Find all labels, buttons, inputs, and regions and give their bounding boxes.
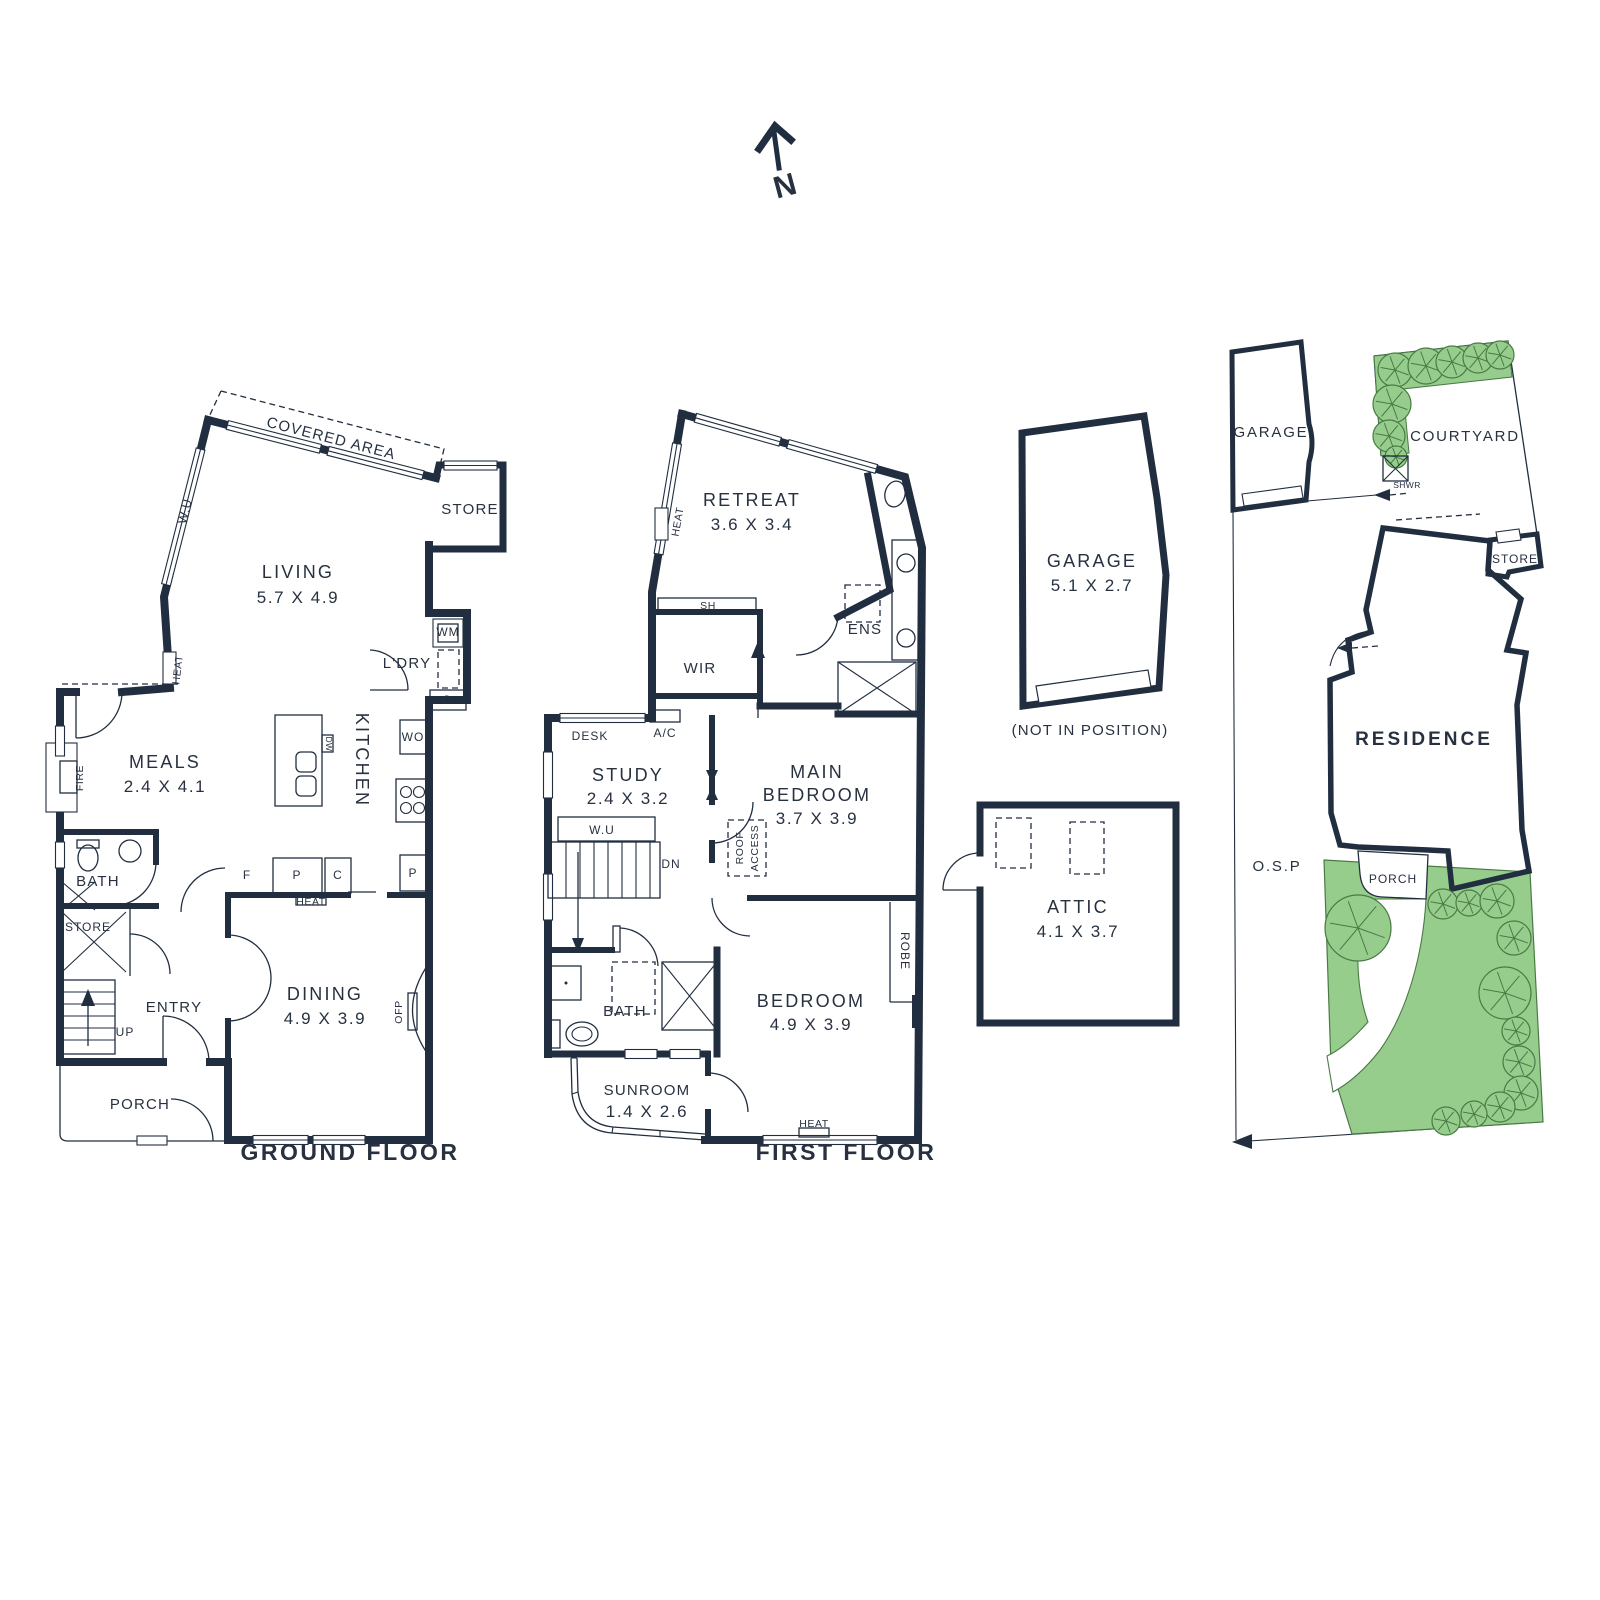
side-gate-arrow <box>1374 489 1390 501</box>
tree-icon <box>1497 921 1531 955</box>
sunroom-window-2 <box>670 1050 700 1059</box>
floorplan-drawing: N <box>0 0 1600 1600</box>
store-top-label: STORE <box>441 501 498 518</box>
wm-label: WM <box>436 625 459 639</box>
garage-plan-dims: 5.1 X 2.7 <box>1051 576 1133 595</box>
tree-icon <box>1486 341 1514 369</box>
residence-entry-arrow <box>1337 642 1352 654</box>
living-label: LIVING <box>262 562 334 582</box>
dining-label: DINING <box>287 984 363 1004</box>
heat-bottom-label: HEAT <box>799 1118 829 1130</box>
retreat-dims: 3.6 X 3.4 <box>711 515 793 534</box>
tree-icon <box>1373 385 1411 423</box>
dining-dims: 4.9 X 3.9 <box>284 1009 366 1028</box>
walk-in-robe <box>652 598 838 718</box>
main-bedroom-label-2: BEDROOM <box>763 785 871 805</box>
porch-label: PORCH <box>110 1096 170 1113</box>
site-boundary-west <box>1233 510 1236 1140</box>
wu-label: W.U <box>175 497 195 525</box>
tree-icon <box>1480 884 1514 918</box>
wo-label: WO <box>402 730 425 744</box>
entry-label: ENTRY <box>146 999 203 1016</box>
dw-label: DW <box>324 737 334 752</box>
site-store: STORE <box>1488 529 1541 577</box>
tree-icon <box>1485 1092 1515 1122</box>
p2-label: P <box>408 866 417 880</box>
meals-door <box>76 692 122 738</box>
bedroom-dims: 4.9 X 3.9 <box>770 1015 852 1034</box>
sunroom-window-1 <box>625 1050 657 1059</box>
courtyard-label: COURTYARD <box>1410 428 1520 445</box>
attic-label: ATTIC <box>1047 897 1109 917</box>
shwr-label: SHWR <box>1393 480 1421 490</box>
up-label: UP <box>116 1025 135 1039</box>
ground-stairs <box>62 980 115 1054</box>
front-door <box>163 1016 209 1062</box>
ensuite <box>796 476 920 714</box>
ground-floor-title: GROUND FLOOR <box>240 1139 459 1165</box>
bath-label: BATH <box>76 873 120 890</box>
tree-icon <box>1428 889 1458 919</box>
tree-icon <box>1503 1046 1535 1078</box>
site-store-door <box>1496 529 1521 543</box>
tree-icon <box>1385 446 1407 468</box>
site-porch-label: PORCH <box>1369 872 1417 886</box>
sunroom-glazing <box>571 1058 705 1140</box>
c2-label: C <box>333 868 343 882</box>
attic-skylight-1 <box>996 818 1031 868</box>
tree-icon <box>1325 895 1391 961</box>
attic-skylight-2 <box>1070 822 1104 874</box>
main-bedroom-dims: 3.7 X 3.9 <box>776 809 858 828</box>
heat-mid-label: HEAT <box>296 896 326 908</box>
first-floor-title: FIRST FLOOR <box>756 1139 937 1165</box>
wir-label: WIR <box>684 660 717 677</box>
desk-label: DESK <box>572 729 609 743</box>
study-fixtures <box>560 710 680 723</box>
site-porch: PORCH <box>1358 851 1428 899</box>
ofp-label: OFP <box>393 1000 405 1023</box>
understair-store <box>62 906 170 976</box>
ac-label: A/C <box>653 726 676 740</box>
site-plan: GARAGE SHWR COURTYARD RESID <box>1232 341 1543 1149</box>
dn-label: DN <box>661 857 680 871</box>
living-dims: 5.7 X 4.9 <box>257 588 339 607</box>
driveway-arrow <box>1232 1134 1252 1149</box>
heat-left-label: HEAT <box>170 654 186 685</box>
heat-retreat-label: HEAT <box>670 506 687 537</box>
c-ldry-label: C <box>442 693 452 707</box>
heat-unit-retreat <box>655 508 668 540</box>
meals-window <box>56 726 65 756</box>
attic-plan: ATTIC 4.1 X 3.7 <box>943 805 1176 1023</box>
floorplan-page: N <box>0 0 1600 1600</box>
sh-label: SH <box>700 600 716 612</box>
tree-icon <box>1502 1017 1530 1045</box>
ldry-label: L'DRY <box>383 655 432 672</box>
residence-label: RESIDENCE <box>1355 729 1493 750</box>
ens-label: ENS <box>848 621 882 638</box>
main-bedroom-label-1: MAIN <box>790 762 844 782</box>
kitchen-label: KITCHEN <box>352 713 372 807</box>
entry-dining-divider <box>228 895 271 1062</box>
north-indicator: N <box>759 126 800 205</box>
p1-label: P <box>292 868 301 882</box>
sunroom-dims: 1.4 X 2.6 <box>606 1102 688 1121</box>
garage-note: (NOT IN POSITION) <box>1012 722 1169 739</box>
attic-dims: 4.1 X 3.7 <box>1037 922 1119 941</box>
tree-icon <box>1479 967 1531 1019</box>
first-bath <box>548 926 717 1054</box>
tree-icon <box>1461 1101 1487 1127</box>
garage-plan-label: GARAGE <box>1047 551 1137 571</box>
meals-label: MEALS <box>129 752 201 772</box>
north-label: N <box>769 166 800 206</box>
study-dims: 2.4 X 3.2 <box>587 789 669 808</box>
robe-label: ROBE <box>898 932 912 970</box>
ground-bath <box>60 832 156 910</box>
first-bath-label: BATH <box>603 1003 647 1020</box>
study-label: STUDY <box>592 765 664 785</box>
sunroom-bedroom-door <box>708 1054 748 1140</box>
site-courtyard: SHWR COURTYARD <box>1373 341 1537 534</box>
first-floor-plan: RETREAT 3.6 X 3.4 HEAT SH WIR ENS DESK A… <box>544 413 937 1165</box>
first-wu-label: W.U <box>589 823 615 837</box>
study-window <box>544 752 553 798</box>
retreat-label: RETREAT <box>703 490 801 510</box>
bedroom-label: BEDROOM <box>757 991 865 1011</box>
first-stairs <box>548 817 660 953</box>
sunroom-label: SUNROOM <box>604 1082 691 1099</box>
store-stairs-label: STORE <box>65 920 111 934</box>
access-label: ACCESS <box>749 825 761 872</box>
fire-label: FIRE <box>74 765 86 791</box>
osp-label: O.S.P <box>1252 858 1301 875</box>
f-label: F <box>243 868 251 882</box>
site-residence: RESIDENCE <box>1330 528 1529 889</box>
site-store-label: STORE <box>1492 552 1538 566</box>
ground-floor-plan: COVERED AREA W.U HEAT STORE LIVING 5.7 X… <box>46 391 503 1165</box>
site-garage: GARAGE <box>1232 342 1312 510</box>
site-garage-label: GARAGE <box>1234 424 1309 441</box>
roof-label: ROOF <box>734 832 746 865</box>
tree-icon <box>1456 890 1482 916</box>
garage-plan: GARAGE 5.1 X 2.7 (NOT IN POSITION) <box>1012 416 1169 739</box>
bath-window <box>56 842 65 868</box>
tree-icon <box>1432 1107 1460 1135</box>
tree-icon <box>1378 353 1412 387</box>
meals-dims: 2.4 X 4.1 <box>124 777 206 796</box>
